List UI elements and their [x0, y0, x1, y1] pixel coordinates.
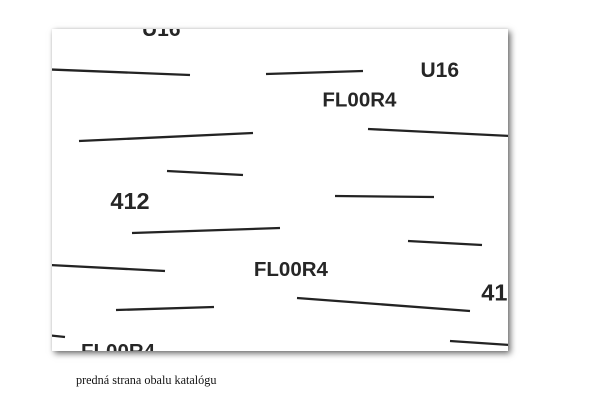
svg-text:412: 412 — [481, 280, 508, 306]
svg-text:412: 412 — [110, 188, 149, 214]
svg-text:FL00R4: FL00R4 — [322, 89, 397, 112]
svg-text:U16: U16 — [142, 29, 181, 41]
svg-text:FL00R4: FL00R4 — [254, 258, 329, 281]
svg-text:U16: U16 — [421, 59, 460, 82]
svg-text:FL00R4: FL00R4 — [81, 340, 156, 351]
